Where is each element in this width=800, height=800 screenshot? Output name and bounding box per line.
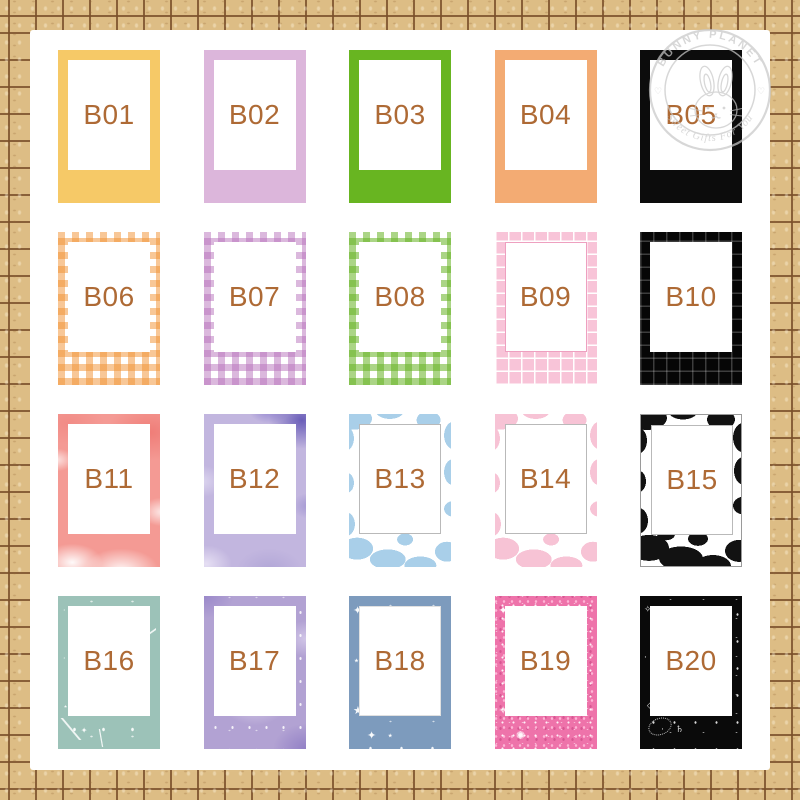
frame-B19: B19 bbox=[495, 596, 597, 749]
frame-label: B15 bbox=[666, 464, 717, 496]
frame-label: B18 bbox=[374, 645, 425, 677]
frame-label: B01 bbox=[83, 99, 134, 131]
photo-window: B07 bbox=[214, 242, 296, 352]
frame-label: B02 bbox=[229, 99, 280, 131]
frame-B09: B09 bbox=[495, 232, 597, 385]
frame-B07: B07 bbox=[204, 232, 306, 385]
frame-B05: B05 bbox=[640, 50, 742, 203]
frame-B14: B14 bbox=[495, 414, 597, 567]
photo-window: B11 bbox=[68, 424, 150, 534]
product-image: B01B02B03B04B05B06B07B08B09B10B11B12B13B… bbox=[0, 0, 800, 800]
frame-B16: B16 bbox=[58, 596, 160, 749]
photo-window: B14 bbox=[505, 424, 587, 534]
frame-label: B05 bbox=[665, 99, 716, 131]
photo-window: B15 bbox=[651, 425, 733, 535]
frame-B04: B04 bbox=[495, 50, 597, 203]
frame-label: B04 bbox=[520, 99, 571, 131]
photo-window: B02 bbox=[214, 60, 296, 170]
frame-B11: B11 bbox=[58, 414, 160, 567]
frame-B18: B18 bbox=[349, 596, 451, 749]
photo-window: B19 bbox=[505, 606, 587, 716]
frame-label: B13 bbox=[374, 463, 425, 495]
frame-label: B08 bbox=[374, 281, 425, 313]
frame-label: B06 bbox=[83, 281, 134, 313]
photo-window: B09 bbox=[505, 242, 587, 352]
photo-window: B06 bbox=[68, 242, 150, 352]
frame-label: B14 bbox=[520, 463, 571, 495]
photo-window: B18 bbox=[359, 606, 441, 716]
frame-label: B17 bbox=[229, 645, 280, 677]
frame-label: B12 bbox=[229, 463, 280, 495]
frame-label: B11 bbox=[84, 463, 133, 495]
frame-B17: B17 bbox=[204, 596, 306, 749]
frame-B13: B13 bbox=[349, 414, 451, 567]
frame-label: B03 bbox=[374, 99, 425, 131]
photo-window: B12 bbox=[214, 424, 296, 534]
frame-B02: B02 bbox=[204, 50, 306, 203]
photo-window: B04 bbox=[505, 60, 587, 170]
photo-window: B03 bbox=[359, 60, 441, 170]
frame-B08: B08 bbox=[349, 232, 451, 385]
photo-window: B16 bbox=[68, 606, 150, 716]
photo-window: B10 bbox=[650, 242, 732, 352]
frame-B03: B03 bbox=[349, 50, 451, 203]
frame-label: B09 bbox=[520, 281, 571, 313]
white-panel: B01B02B03B04B05B06B07B08B09B10B11B12B13B… bbox=[30, 30, 770, 770]
frame-label: B07 bbox=[229, 281, 280, 313]
frame-B15: B15 bbox=[640, 414, 742, 567]
photo-window: B01 bbox=[68, 60, 150, 170]
frame-B10: B10 bbox=[640, 232, 742, 385]
photo-window: B17 bbox=[214, 606, 296, 716]
frames-grid: B01B02B03B04B05B06B07B08B09B10B11B12B13B… bbox=[58, 50, 742, 749]
frame-label: B10 bbox=[665, 281, 716, 313]
frame-label: B20 bbox=[665, 645, 716, 677]
photo-window: B20 bbox=[650, 606, 732, 716]
frame-B20: B20 bbox=[640, 596, 742, 749]
frame-B01: B01 bbox=[58, 50, 160, 203]
photo-window: B13 bbox=[359, 424, 441, 534]
photo-window: B08 bbox=[359, 242, 441, 352]
frame-label: B16 bbox=[83, 645, 134, 677]
frame-B12: B12 bbox=[204, 414, 306, 567]
photo-window: B05 bbox=[650, 60, 732, 170]
frame-label: B19 bbox=[520, 645, 571, 677]
frame-B06: B06 bbox=[58, 232, 160, 385]
